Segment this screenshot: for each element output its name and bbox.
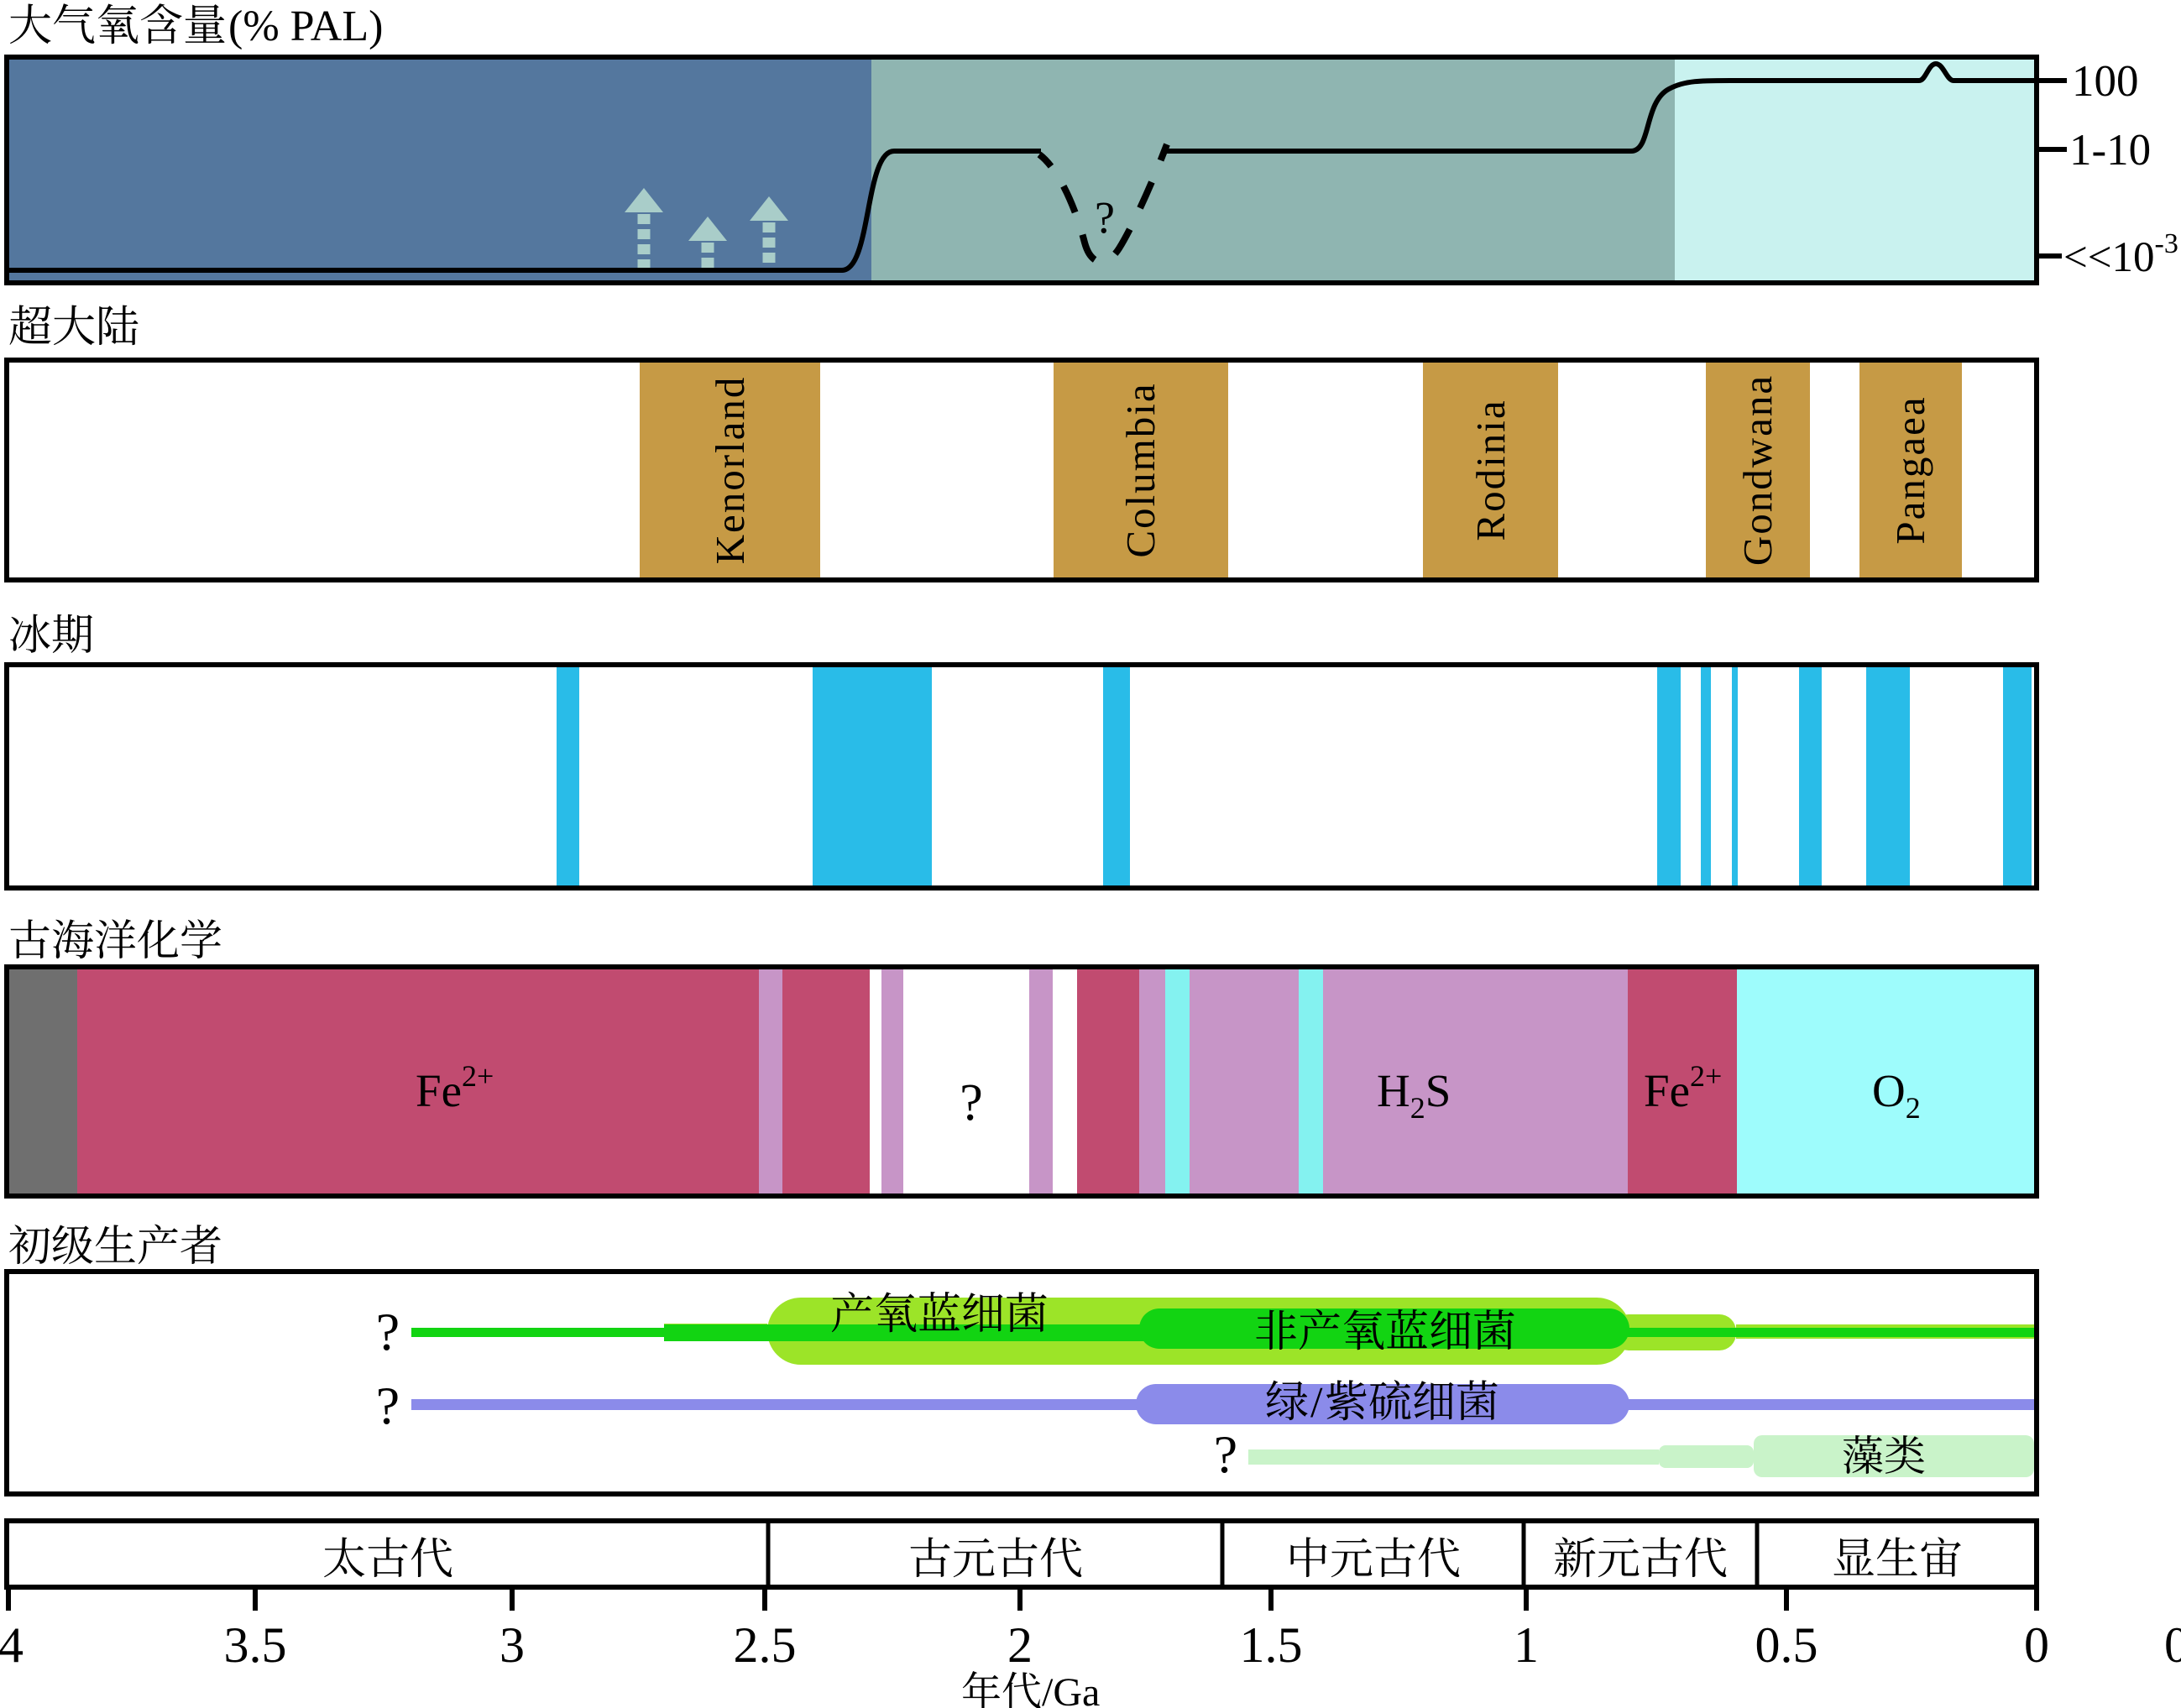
svg-text:Columbia: Columbia	[1117, 382, 1164, 557]
svg-text:?: ?	[376, 1302, 400, 1361]
svg-text:2.5: 2.5	[734, 1617, 797, 1673]
svg-text:3.5: 3.5	[224, 1617, 287, 1673]
svg-text:3: 3	[499, 1617, 525, 1673]
svg-text:Rodinia: Rodinia	[1467, 399, 1514, 541]
svg-text:/Ga: /Ga	[1042, 1670, 1100, 1708]
svg-text:Kenorland: Kenorland	[707, 376, 753, 565]
svg-text:(% PAL): (% PAL)	[228, 3, 383, 50]
svg-text:4: 4	[0, 1617, 24, 1673]
svg-text:Pangaea: Pangaea	[1887, 395, 1933, 544]
svg-text:?: ?	[1095, 192, 1115, 243]
svg-text:2: 2	[1007, 1617, 1033, 1673]
svg-text:?: ?	[376, 1376, 400, 1435]
svg-text:1.5: 1.5	[1240, 1617, 1303, 1673]
svg-text:0.5: 0.5	[1755, 1617, 1818, 1673]
svg-text:?: ?	[960, 1074, 983, 1131]
svg-text:100: 100	[2072, 57, 2139, 106]
svg-text:1-10: 1-10	[2069, 126, 2151, 175]
svg-text:?: ?	[1214, 1424, 1237, 1484]
svg-text:/: /	[1310, 1379, 1323, 1427]
svg-text:0: 0	[2024, 1617, 2049, 1673]
svg-text:0.5: 0.5	[2164, 1617, 2181, 1673]
svg-text:Gondwana: Gondwana	[1734, 374, 1781, 566]
svg-text:1: 1	[1514, 1617, 1539, 1673]
